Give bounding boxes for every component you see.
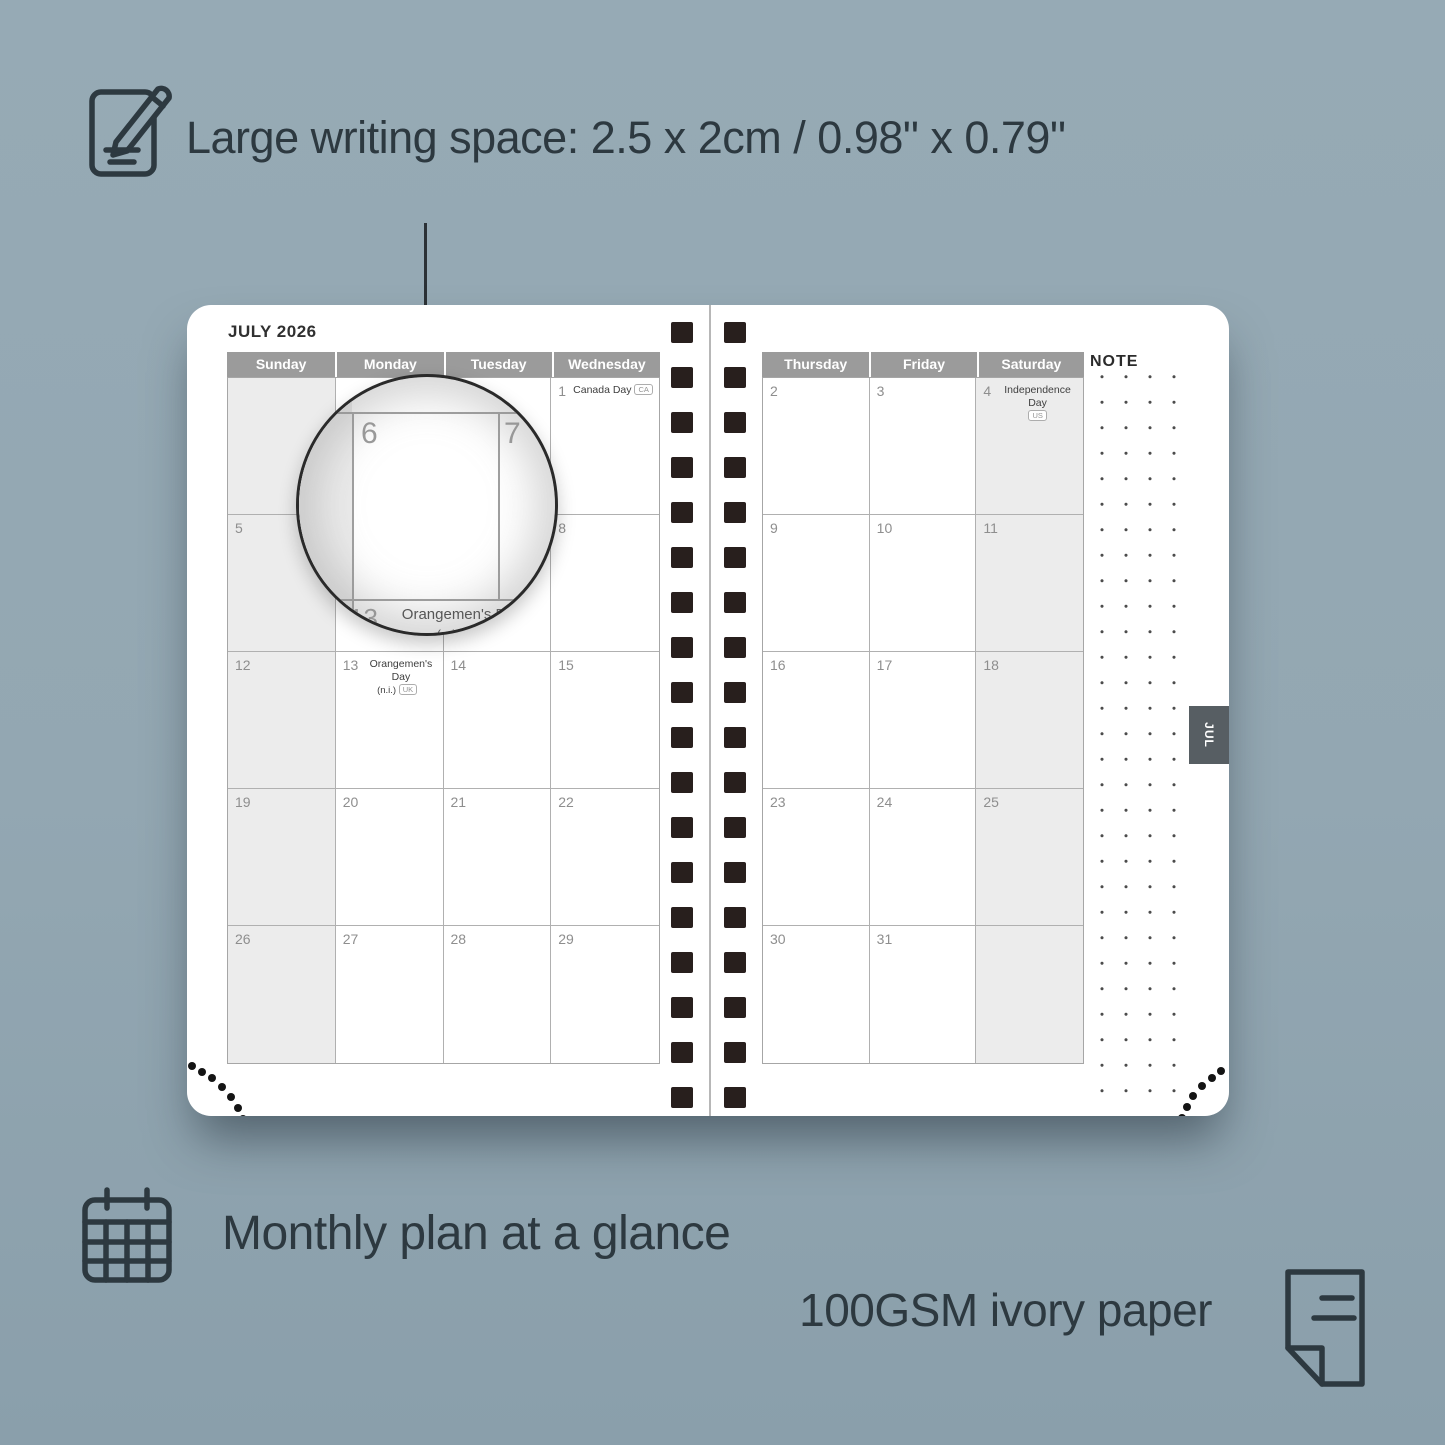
corner-perforation-dot <box>218 1083 226 1091</box>
day-header: Wednesday <box>552 352 660 377</box>
calendar-cell: 12 <box>228 652 336 789</box>
spiral-hole <box>724 457 746 478</box>
calendar-cell: 17 <box>870 652 977 789</box>
calendar-icon <box>80 1186 174 1286</box>
spiral-hole <box>671 637 693 658</box>
day-number: 11 <box>983 521 998 536</box>
day-number: 29 <box>558 932 574 947</box>
calendar-cell: 21 <box>444 789 552 926</box>
day-number: 23 <box>770 795 786 810</box>
corner-perforation-dot <box>198 1068 206 1076</box>
holiday-label: Independence Day <box>995 384 1080 409</box>
day-number: 8 <box>558 521 566 536</box>
day-number: 15 <box>558 658 574 673</box>
holiday-sub-line: (n.i.) UK <box>355 684 440 696</box>
spiral-hole <box>671 997 693 1018</box>
spiral-hole <box>671 412 693 433</box>
day-number: 9 <box>770 521 778 536</box>
day-number: 10 <box>877 521 893 536</box>
spiral-hole <box>724 502 746 523</box>
calendar-cell: 8 <box>551 515 659 652</box>
spiral-hole <box>671 952 693 973</box>
holiday-sub-line: US <box>995 410 1080 422</box>
spiral-hole <box>724 592 746 613</box>
day-number: 18 <box>983 658 999 673</box>
month-side-tab: JUL <box>1189 706 1229 764</box>
spiral-hole <box>724 997 746 1018</box>
spiral-hole <box>671 457 693 478</box>
day-header: Friday <box>869 352 976 377</box>
calendar-cell: 24 <box>870 789 977 926</box>
calendar-cell: 29 <box>551 926 659 1063</box>
day-number: 26 <box>235 932 251 947</box>
product-image: Large writing space: 2.5 x 2cm / 0.98" x… <box>0 0 1445 1445</box>
day-number: 12 <box>235 658 251 673</box>
calendar-cell: 3 <box>870 378 977 515</box>
day-header: Sunday <box>227 352 335 377</box>
magnified-holiday: Orangemen's Day (n.i.) UK <box>387 605 537 636</box>
magnified-holiday-name: Orangemen's Day <box>387 605 537 625</box>
holiday-badge: CA <box>634 384 652 395</box>
spiral-hole <box>724 952 746 973</box>
day-number: 27 <box>343 932 359 947</box>
spiral-hole <box>671 727 693 748</box>
magnified-day-number: 7 <box>504 419 521 449</box>
magnified-grid-line <box>299 412 555 414</box>
calendar-cell: 10 <box>870 515 977 652</box>
day-number: 24 <box>877 795 893 810</box>
day-number: 1 <box>558 384 566 399</box>
page-gutter-line <box>709 305 711 1116</box>
corner-perforation-dot <box>1183 1103 1191 1111</box>
feature-writing-space-text: Large writing space: 2.5 x 2cm / 0.98" x… <box>186 112 1065 164</box>
day-number: 20 <box>343 795 359 810</box>
month-side-tab-label: JUL <box>1202 722 1216 748</box>
spiral-hole <box>671 1087 693 1108</box>
day-number: 16 <box>770 658 786 673</box>
holiday-label: Orangemen's Day <box>362 658 439 683</box>
spiral-hole <box>671 907 693 928</box>
day-number: 13 <box>343 658 359 673</box>
corner-perforation-dot <box>1198 1082 1206 1090</box>
calendar-cell: 23 <box>763 789 870 926</box>
spiral-hole <box>724 727 746 748</box>
calendar-cell: 2 <box>763 378 870 515</box>
calendar-cell: 25 <box>976 789 1083 926</box>
magnified-sunday-column <box>299 377 352 633</box>
calendar-cell: 13Orangemen's Day(n.i.) UK <box>336 652 444 789</box>
feature-monthly-text: Monthly plan at a glance <box>222 1206 730 1261</box>
calendar-cell: 19 <box>228 789 336 926</box>
spiral-hole <box>724 772 746 793</box>
spiral-hole <box>671 592 693 613</box>
spiral-hole <box>724 682 746 703</box>
corner-perforation-dot <box>1178 1114 1186 1116</box>
spiral-hole <box>724 907 746 928</box>
calendar-cell: 20 <box>336 789 444 926</box>
day-number: 5 <box>235 521 243 536</box>
spiral-hole <box>724 817 746 838</box>
spiral-hole <box>671 817 693 838</box>
corner-perforation-dot <box>234 1104 242 1112</box>
day-number: 30 <box>770 932 786 947</box>
day-number: 21 <box>451 795 467 810</box>
magnified-day-number: 13 <box>349 605 378 631</box>
day-number: 14 <box>451 658 467 673</box>
day-number: 3 <box>877 384 885 399</box>
spiral-hole <box>724 1042 746 1063</box>
day-header: Thursday <box>762 352 869 377</box>
note-dot-grid <box>1086 355 1196 1093</box>
calendar-right-page: ThursdayFridaySaturday234Independence Da… <box>762 352 1084 1064</box>
spiral-hole <box>671 322 693 343</box>
calendar-cell: 18 <box>976 652 1083 789</box>
day-header: Tuesday <box>444 352 552 377</box>
spiral-hole <box>724 412 746 433</box>
corner-perforation-dot <box>239 1115 247 1116</box>
calendar-cell: 22 <box>551 789 659 926</box>
spiral-hole <box>671 547 693 568</box>
note-label: NOTE <box>1090 351 1148 373</box>
corner-perforation-dot <box>1208 1074 1216 1082</box>
spiral-hole <box>671 367 693 388</box>
spiral-hole <box>724 547 746 568</box>
spiral-hole <box>724 1087 746 1108</box>
magnified-grid-line <box>299 599 555 601</box>
calendar-cell: 11 <box>976 515 1083 652</box>
month-title: JULY 2026 <box>228 322 317 342</box>
corner-perforation-dot <box>1217 1067 1225 1075</box>
calendar-cell: 31 <box>870 926 977 1063</box>
day-number: 31 <box>877 932 893 947</box>
calendar-cell: 4Independence DayUS <box>976 378 1083 515</box>
calendar-cell: 9 <box>763 515 870 652</box>
calendar-cell <box>976 926 1083 1063</box>
day-number: 4 <box>983 384 991 399</box>
corner-perforation-dot <box>227 1093 235 1101</box>
spiral-hole <box>724 367 746 388</box>
day-header: Saturday <box>977 352 1084 377</box>
calendar-cell: 1Canada Day CA <box>551 378 659 515</box>
calendar-cell: 26 <box>228 926 336 1063</box>
day-number: 25 <box>983 795 999 810</box>
magnified-day-number: 6 <box>361 419 378 449</box>
day-number: 19 <box>235 795 251 810</box>
spiral-hole <box>671 502 693 523</box>
spiral-hole <box>671 862 693 883</box>
holiday-badge: UK <box>399 684 417 695</box>
day-number: 28 <box>451 932 467 947</box>
corner-perforation-dot <box>1189 1092 1197 1100</box>
paper-icon <box>1274 1266 1374 1390</box>
magnified-grid-line <box>352 412 354 633</box>
calendar-cell: 15 <box>551 652 659 789</box>
day-number: 17 <box>877 658 893 673</box>
holiday-badge: US <box>1028 410 1046 421</box>
spiral-hole <box>671 772 693 793</box>
holiday-label: Canada Day CA <box>570 384 656 397</box>
feature-paper-text: 100GSM ivory paper <box>799 1283 1212 1337</box>
spiral-hole <box>724 322 746 343</box>
spiral-hole <box>724 862 746 883</box>
calendar-cell: 27 <box>336 926 444 1063</box>
spiral-hole <box>671 682 693 703</box>
notepad-pencil-icon <box>86 76 178 180</box>
calendar-cell: 28 <box>444 926 552 1063</box>
magnified-grid-line <box>498 412 500 599</box>
magnifier-circle: 6 7 13 Orangemen's Day (n.i.) UK <box>296 374 558 636</box>
day-number: 2 <box>770 384 778 399</box>
corner-perforation-dot <box>208 1074 216 1082</box>
corner-perforation-dot <box>188 1062 196 1070</box>
spiral-hole <box>724 637 746 658</box>
spiral-hole <box>671 1042 693 1063</box>
calendar-cell: 30 <box>763 926 870 1063</box>
calendar-cell: 14 <box>444 652 552 789</box>
day-number: 22 <box>558 795 574 810</box>
calendar-cell: 16 <box>763 652 870 789</box>
